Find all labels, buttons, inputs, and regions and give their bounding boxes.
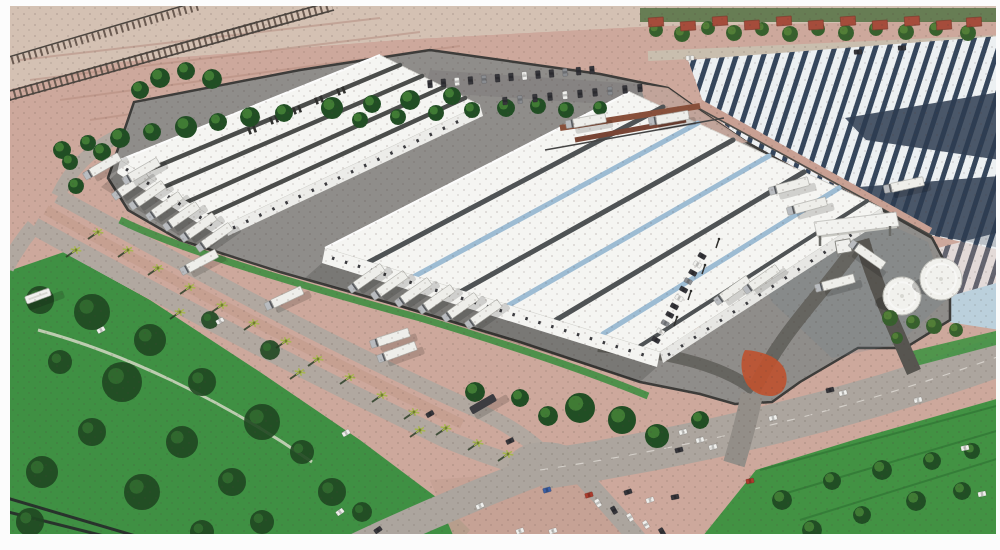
paper-grain bbox=[0, 0, 1000, 550]
logistics-park-scene bbox=[0, 0, 1000, 550]
aerial-rendering-image bbox=[0, 0, 1000, 550]
